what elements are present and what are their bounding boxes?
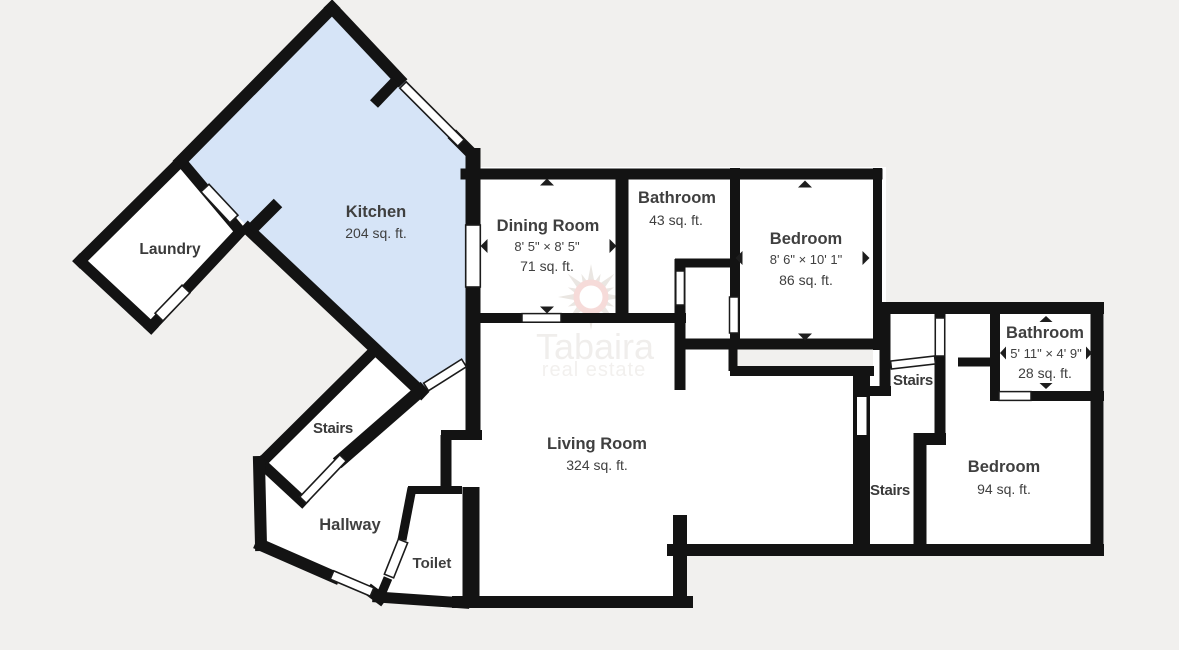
svg-text:Toilet: Toilet [413, 555, 452, 572]
svg-text:Bedroom: Bedroom [968, 458, 1040, 476]
svg-text:8' 6" × 10' 1": 8' 6" × 10' 1" [770, 252, 843, 267]
svg-text:8' 5" × 8' 5": 8' 5" × 8' 5" [514, 239, 580, 254]
svg-text:43 sq. ft.: 43 sq. ft. [649, 212, 703, 228]
svg-text:Stairs: Stairs [893, 372, 933, 389]
svg-text:71 sq. ft.: 71 sq. ft. [520, 258, 574, 274]
svg-text:Dining Room: Dining Room [497, 217, 600, 235]
svg-text:94 sq. ft.: 94 sq. ft. [977, 481, 1031, 497]
svg-text:204 sq. ft.: 204 sq. ft. [345, 225, 406, 241]
svg-text:28 sq. ft.: 28 sq. ft. [1018, 365, 1072, 381]
svg-text:Stairs: Stairs [313, 420, 353, 437]
svg-text:Bathroom: Bathroom [1006, 324, 1084, 342]
svg-text:Laundry: Laundry [139, 241, 201, 258]
svg-text:Living Room: Living Room [547, 435, 647, 453]
svg-text:real estate: real estate [542, 359, 646, 381]
svg-text:Bathroom: Bathroom [638, 189, 716, 207]
svg-text:324 sq. ft.: 324 sq. ft. [566, 457, 627, 473]
svg-text:Stairs: Stairs [870, 482, 910, 499]
svg-text:5' 11" × 4' 9": 5' 11" × 4' 9" [1010, 346, 1082, 361]
svg-text:Hallway: Hallway [319, 516, 381, 534]
svg-text:Bedroom: Bedroom [770, 230, 842, 248]
svg-text:Kitchen: Kitchen [346, 203, 407, 221]
svg-text:86 sq. ft.: 86 sq. ft. [779, 272, 833, 288]
